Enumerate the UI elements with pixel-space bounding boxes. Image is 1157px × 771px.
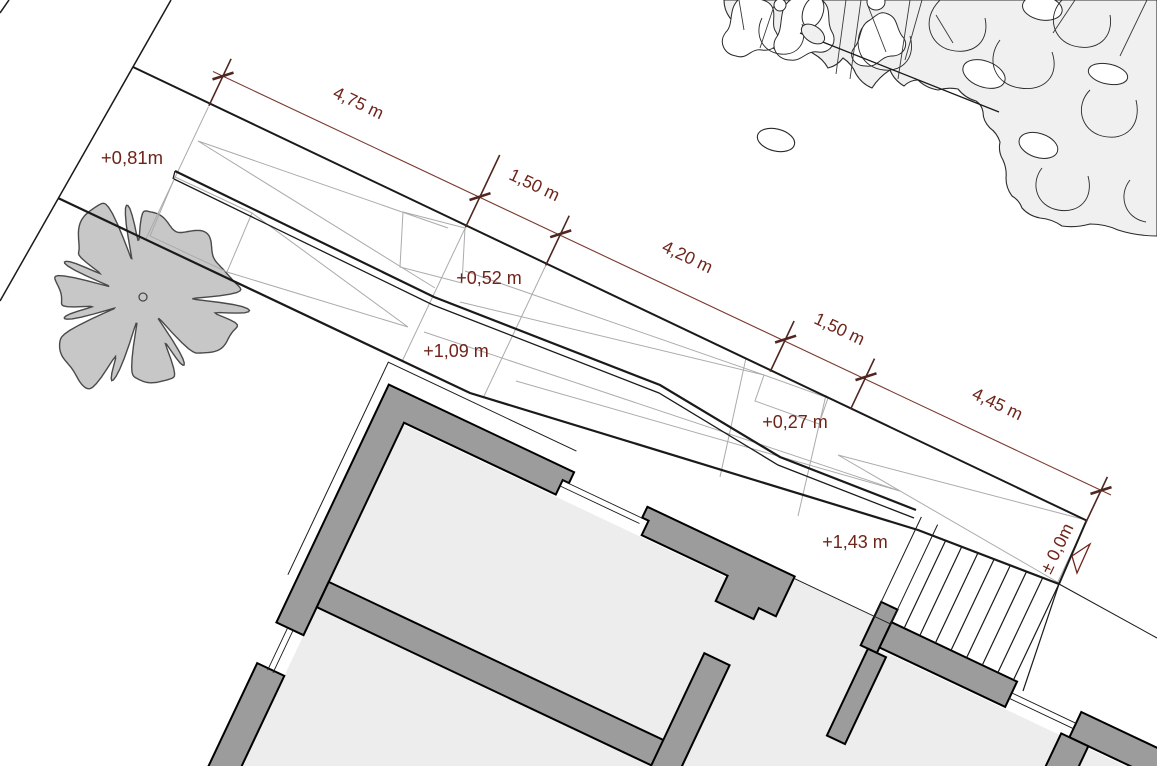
svg-text:+1,09 m: +1,09 m (423, 341, 489, 361)
svg-text:+0,27 m: +0,27 m (762, 412, 828, 432)
svg-text:+0,81m: +0,81m (101, 147, 163, 168)
svg-text:+0,52 m: +0,52 m (456, 268, 522, 288)
svg-text:+1,43 m: +1,43 m (822, 532, 888, 552)
